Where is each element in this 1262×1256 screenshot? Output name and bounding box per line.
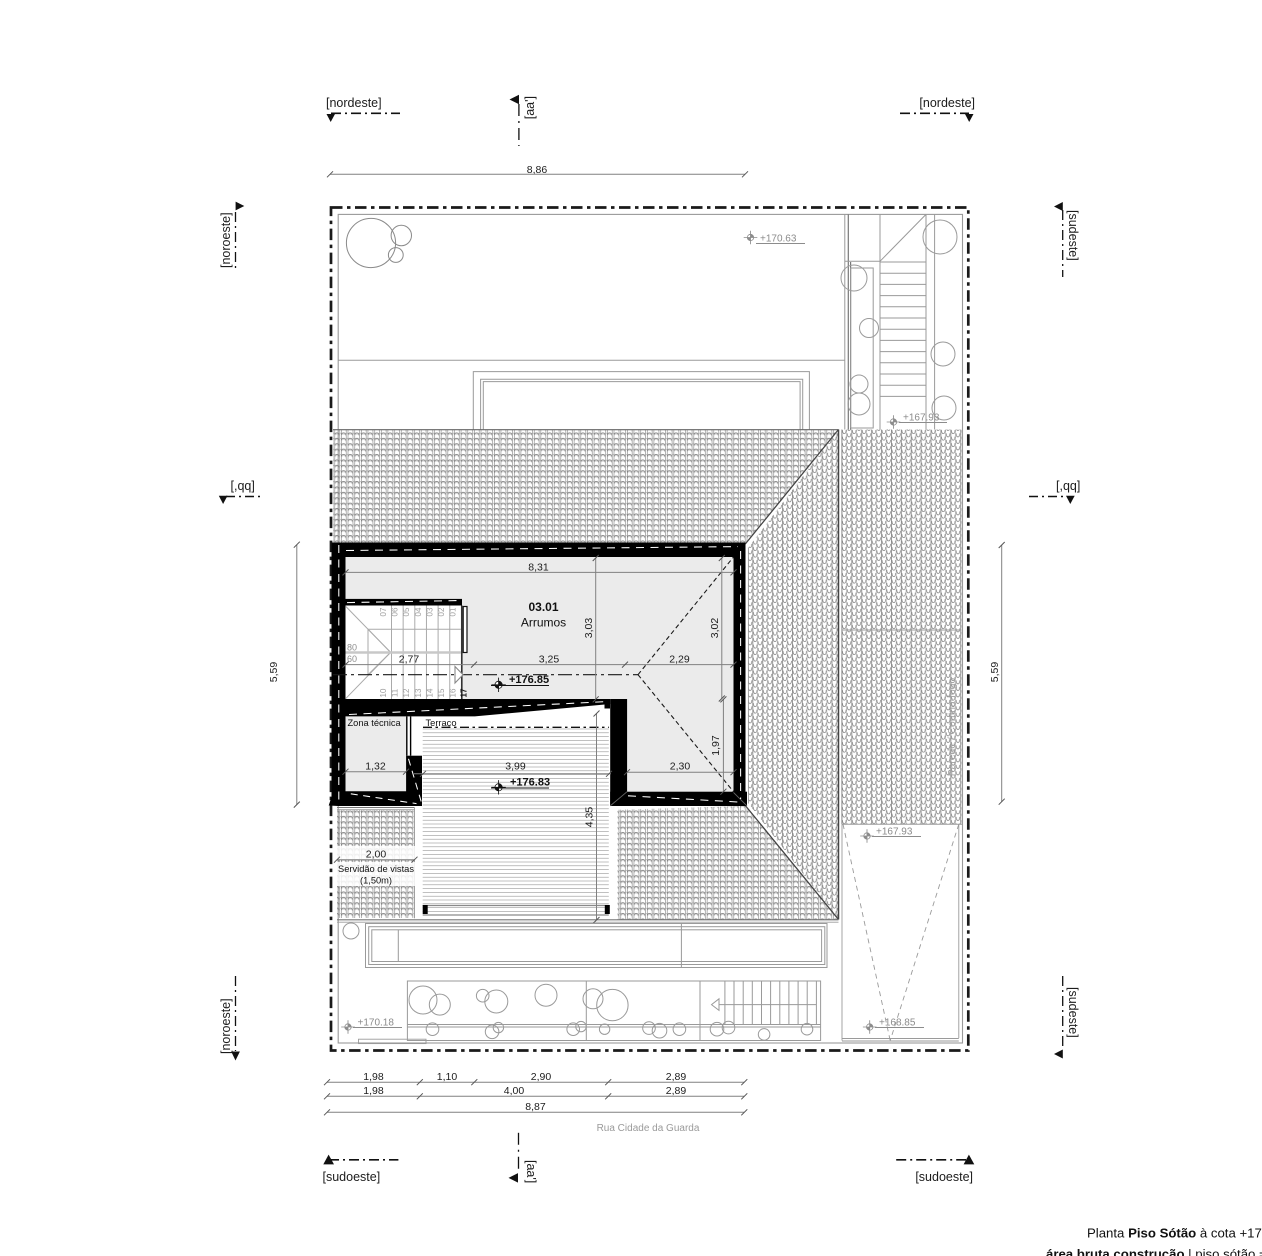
svg-text:área bruta construção | piso s: área bruta construção | piso sótão = 031	[1046, 1247, 1262, 1256]
svg-text:05: 05	[402, 607, 411, 616]
svg-text:3,99: 3,99	[505, 760, 526, 772]
svg-text:11: 11	[390, 688, 399, 697]
svg-text:1,98: 1,98	[363, 1085, 384, 1097]
svg-text:07: 07	[379, 607, 388, 616]
svg-text:+168.85: +168.85	[879, 1018, 916, 1029]
svg-text:[sudoeste]: [sudoeste]	[323, 1170, 381, 1184]
svg-text:3,03: 3,03	[583, 618, 595, 639]
svg-text:16: 16	[449, 688, 458, 697]
svg-text:2,89: 2,89	[666, 1085, 687, 1097]
svg-text:10: 10	[379, 688, 388, 697]
svg-text:+167.93: +167.93	[903, 413, 940, 424]
svg-text:+170.18: +170.18	[358, 1018, 395, 1029]
svg-text:Terraço: Terraço	[426, 718, 457, 728]
svg-text:8,87: 8,87	[525, 1101, 546, 1113]
svg-text:[noroeste]: [noroeste]	[219, 212, 233, 268]
svg-text:03.01: 03.01	[528, 600, 558, 614]
svg-text:Rua Cidade da Guarda: Rua Cidade da Guarda	[597, 1123, 700, 1134]
svg-text:14: 14	[425, 688, 434, 697]
svg-text:12: 12	[402, 688, 411, 697]
svg-text:2,89: 2,89	[666, 1071, 687, 1083]
svg-text:+170.63: +170.63	[760, 234, 797, 245]
svg-text:1,10: 1,10	[437, 1071, 458, 1083]
svg-text:(1,50m): (1,50m)	[360, 876, 392, 886]
svg-text:80: 80	[347, 643, 357, 653]
svg-text:[noroeste]: [noroeste]	[219, 998, 233, 1054]
svg-text:+176.85: +176.85	[509, 674, 549, 686]
svg-text:2,77: 2,77	[399, 653, 420, 665]
svg-text:5,59: 5,59	[989, 662, 1001, 683]
svg-text:[aa']: [aa']	[523, 96, 537, 119]
svg-text:2,00: 2,00	[366, 849, 387, 861]
svg-text:13: 13	[414, 688, 423, 697]
svg-text:[nordeste]: [nordeste]	[326, 96, 382, 110]
svg-text:[,qq]: [,qq]	[231, 479, 255, 493]
svg-text:[sudeste]: [sudeste]	[1066, 210, 1080, 261]
svg-text:[aa']: [aa']	[524, 1160, 538, 1183]
svg-text:3,02: 3,02	[709, 618, 721, 639]
svg-text:4,00: 4,00	[504, 1085, 525, 1097]
svg-text:+176.83: +176.83	[510, 777, 550, 789]
svg-text:06: 06	[390, 607, 399, 616]
svg-text:2,29: 2,29	[669, 653, 690, 665]
svg-text:02: 02	[437, 607, 446, 616]
svg-text:Arrumos: Arrumos	[521, 616, 566, 630]
svg-text:Parede / Cortina-fogo: Parede / Cortina-fogo	[947, 678, 958, 777]
svg-text:+167.93: +167.93	[876, 827, 913, 838]
svg-text:Zona técnica: Zona técnica	[348, 718, 402, 728]
svg-text:[,qq]: [,qq]	[1056, 479, 1080, 493]
svg-text:Planta Piso Sótão à cota +178.: Planta Piso Sótão à cota +178.	[1087, 1226, 1262, 1241]
svg-text:[sudoeste]: [sudoeste]	[915, 1170, 973, 1184]
svg-text:2,30: 2,30	[670, 761, 691, 773]
svg-text:04: 04	[414, 607, 423, 616]
svg-text:17: 17	[460, 688, 469, 697]
svg-text:3,25: 3,25	[539, 653, 560, 665]
svg-text:5,59: 5,59	[268, 662, 280, 683]
svg-text:1,98: 1,98	[363, 1071, 384, 1083]
svg-text:1,97: 1,97	[710, 735, 722, 756]
svg-text:01: 01	[449, 607, 458, 616]
svg-text:2,90: 2,90	[531, 1071, 552, 1083]
svg-text:8,31: 8,31	[528, 562, 549, 574]
svg-text:4,35: 4,35	[584, 807, 596, 828]
svg-text:60: 60	[347, 654, 357, 664]
svg-text:15: 15	[437, 688, 446, 697]
svg-text:[sudeste]: [sudeste]	[1066, 987, 1080, 1038]
svg-text:1,32: 1,32	[365, 761, 386, 773]
svg-text:[nordeste]: [nordeste]	[919, 96, 975, 110]
svg-text:03: 03	[425, 607, 434, 616]
svg-text:Servidão de vistas: Servidão de vistas	[338, 864, 414, 874]
